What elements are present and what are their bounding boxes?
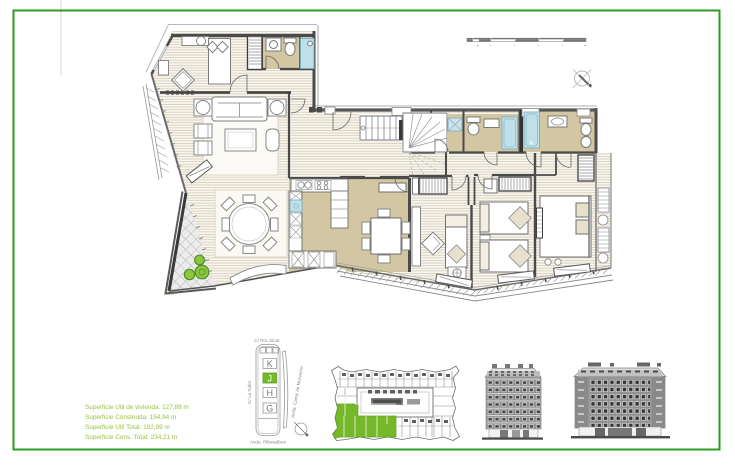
svg-text:Avda. Ribesalbes: Avda. Ribesalbes: [250, 440, 286, 445]
svg-text:H: H: [266, 388, 273, 398]
svg-text:C/ Río Júcar: C/ Río Júcar: [254, 338, 280, 343]
svg-text:C/ La Safor: C/ La Safor: [247, 380, 252, 404]
svg-text:G: G: [266, 404, 273, 414]
svg-text:Superficie Construida: 154,94: Superficie Construida: 154,94 m: [85, 414, 176, 421]
svg-text:Superficie Util Total: 192,99: Superficie Util Total: 192,99 m: [85, 424, 170, 431]
svg-text:Superficie Util de vivienda:: Superficie Util de vivienda: 127,88 m: [85, 404, 189, 411]
svg-text:J: J: [267, 374, 272, 384]
svg-text:K: K: [267, 359, 273, 369]
svg-text:Superficie Cons. Total: 234,2: Superficie Cons. Total: 234,21 m: [85, 434, 177, 441]
